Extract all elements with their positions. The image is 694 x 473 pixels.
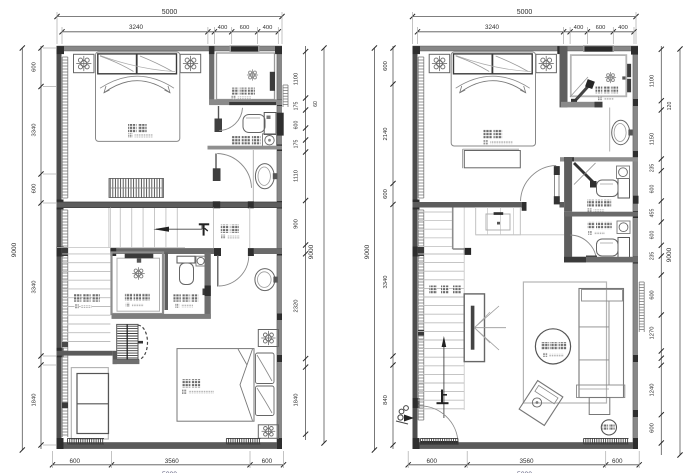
svg-text:1840: 1840 [294,394,300,407]
svg-text:1840: 1840 [32,394,38,407]
svg-text:3560: 3560 [165,458,180,465]
svg-text:1240: 1240 [650,384,656,397]
svg-text:600: 600 [612,458,623,465]
svg-text:400: 400 [263,25,273,31]
svg-text:600: 600 [240,25,250,31]
svg-text:600: 600 [32,62,38,72]
svg-text:400: 400 [574,25,584,31]
svg-text:840: 840 [383,395,389,405]
svg-text:5000: 5000 [517,9,533,16]
svg-text:3340: 3340 [383,276,389,289]
svg-text:600: 600 [383,61,389,71]
svg-text:455: 455 [650,209,656,218]
svg-text:600: 600 [383,189,389,199]
svg-text:60: 60 [313,101,319,107]
svg-text:5000: 5000 [162,9,178,16]
svg-text:1100: 1100 [650,75,656,87]
svg-text:9000: 9000 [308,244,315,259]
svg-text:9000: 9000 [11,242,18,257]
svg-text:1150: 1150 [650,133,656,145]
svg-text:900: 900 [294,219,300,229]
svg-text:600: 600 [262,458,273,465]
svg-text:3340: 3340 [32,281,38,294]
svg-text:1100: 1100 [294,73,300,85]
svg-text:600: 600 [596,25,606,31]
svg-text:175: 175 [294,102,300,111]
svg-text:1110: 1110 [294,170,300,182]
svg-text:600: 600 [650,231,656,240]
svg-text:9000: 9000 [666,247,673,262]
svg-text:175: 175 [294,140,300,149]
svg-text:120: 120 [667,102,673,111]
svg-text:3340: 3340 [32,124,38,137]
svg-text:3240: 3240 [129,24,144,31]
svg-text:1270: 1270 [650,327,656,340]
svg-text:600: 600 [427,458,438,465]
svg-text:2140: 2140 [383,128,389,141]
svg-text:600: 600 [650,185,656,194]
svg-text:235: 235 [650,252,656,261]
svg-text:3240: 3240 [485,24,500,31]
svg-text:600: 600 [650,423,656,433]
svg-text:235: 235 [650,164,656,173]
svg-text:400: 400 [218,25,228,31]
svg-text:600: 600 [32,184,38,194]
svg-text:600: 600 [70,458,81,465]
svg-text:400: 400 [618,25,628,31]
svg-text:9000: 9000 [364,244,371,259]
svg-text:3560: 3560 [519,458,534,465]
svg-text:600: 600 [294,121,300,130]
svg-text:600: 600 [650,290,656,299]
svg-text:2320: 2320 [294,300,300,313]
